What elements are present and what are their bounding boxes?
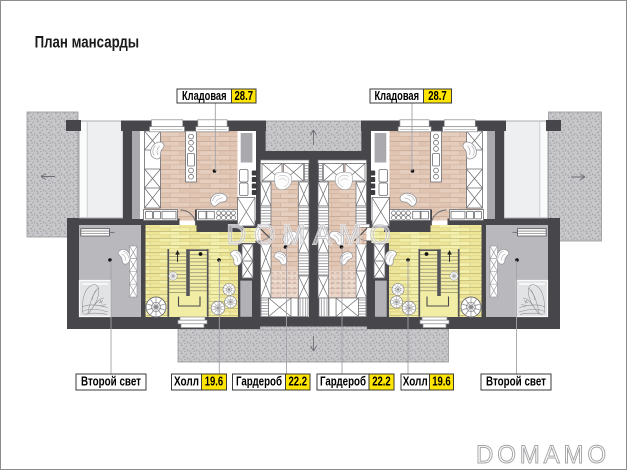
svg-text:Гардероб: Гардероб [236, 374, 282, 389]
svg-text:Холл: Холл [174, 374, 199, 389]
svg-text:Кладовая: Кладовая [375, 88, 420, 103]
svg-text:DOMAMO: DOMAMO [476, 441, 610, 469]
svg-text:28.7: 28.7 [235, 88, 254, 103]
svg-text:План мансарды: План мансарды [35, 33, 140, 52]
svg-text:19.6: 19.6 [432, 374, 451, 389]
svg-text:Кладовая: Кладовая [182, 88, 227, 103]
svg-text:22.2: 22.2 [289, 374, 308, 389]
svg-text:Гардероб: Гардероб [320, 374, 366, 389]
svg-text:22.2: 22.2 [372, 374, 391, 389]
svg-text:Второй свет: Второй свет [486, 374, 546, 389]
svg-text:28.7: 28.7 [428, 88, 447, 103]
svg-text:Второй свет: Второй свет [81, 374, 141, 389]
svg-text:19.6: 19.6 [205, 374, 224, 389]
svg-text:DOMAMO: DOMAMO [227, 219, 399, 250]
svg-text:Холл: Холл [403, 374, 428, 389]
